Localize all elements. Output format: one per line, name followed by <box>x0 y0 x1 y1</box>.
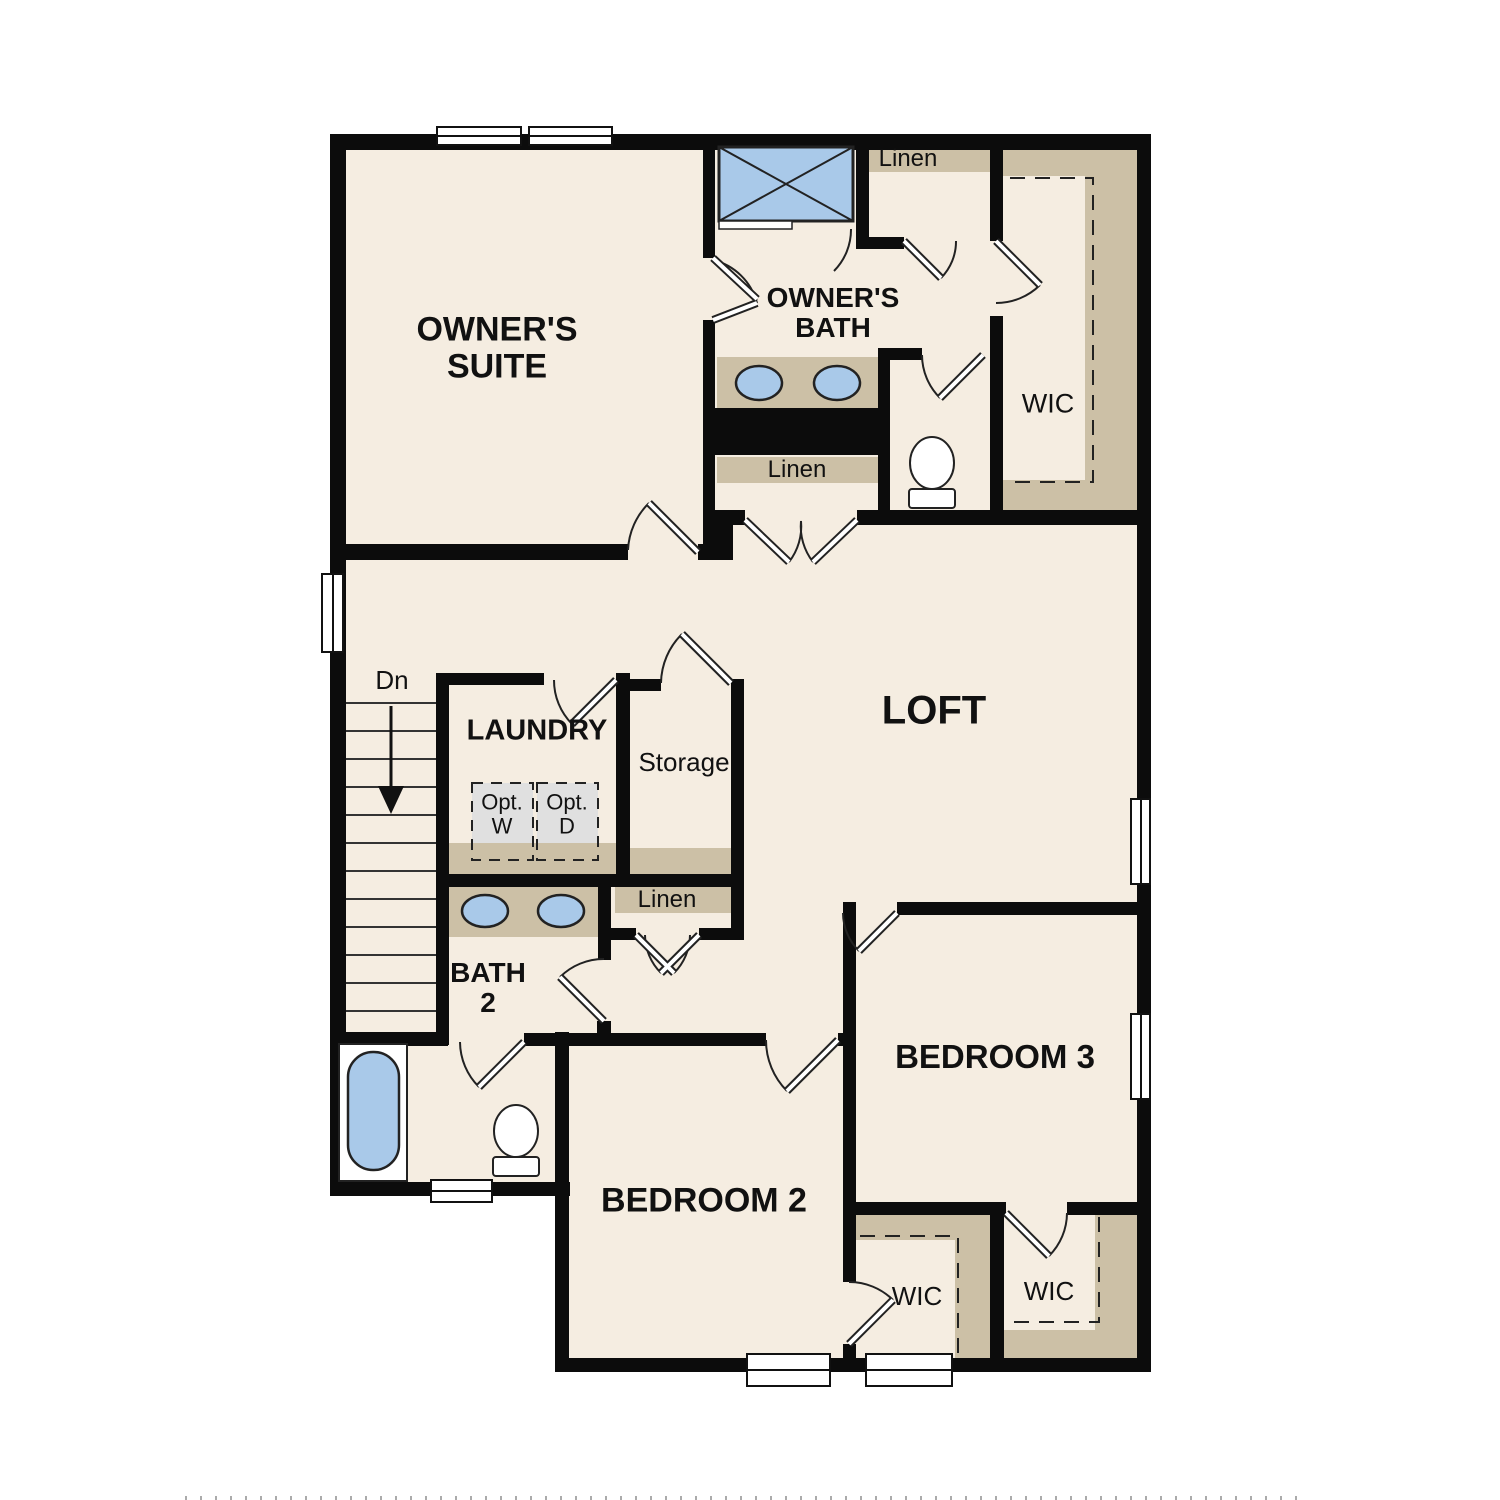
label-linen-hall: Linen <box>638 887 697 913</box>
toilet-bath2-icon <box>493 1105 539 1176</box>
bathtub-icon <box>339 1044 407 1181</box>
label-line: 2 <box>450 988 526 1018</box>
label-bedroom2: BEDROOM 2 <box>601 1183 807 1220</box>
label-wic-bedroom3: WIC <box>1024 1277 1075 1305</box>
label-stairs-dn: Dn <box>375 666 408 694</box>
label-linen-upper: Linen <box>879 146 938 172</box>
label-storage: Storage <box>638 748 729 776</box>
label-opt-washer: Opt. W <box>481 790 523 838</box>
plan-linework <box>0 0 1500 1500</box>
double-sink-owners-icon <box>736 366 860 400</box>
label-line: OWNER'S <box>767 283 900 313</box>
label-line: D <box>546 814 588 838</box>
double-sink-bath2-icon <box>462 895 584 927</box>
label-bath2: BATH 2 <box>450 958 526 1018</box>
label-bedroom3: BEDROOM 3 <box>895 1039 1095 1075</box>
toilet-owners-icon <box>909 437 955 508</box>
label-line: SUITE <box>416 348 577 385</box>
label-line: Opt. <box>546 790 588 814</box>
label-opt-dryer: Opt. D <box>546 790 588 838</box>
label-owners-suite: OWNER'S SUITE <box>416 311 577 384</box>
label-wic-bedroom2: WIC <box>892 1282 943 1310</box>
label-line: BATH <box>767 313 900 343</box>
label-line: BATH <box>450 958 526 988</box>
label-line: W <box>481 814 523 838</box>
floor-plan-canvas: OWNER'S SUITE OWNER'S BATH WIC Linen Lin… <box>0 0 1500 1500</box>
label-laundry: LAUNDRY <box>467 715 608 746</box>
label-wic-owners: WIC <box>1022 389 1074 418</box>
shower-icon <box>719 147 853 271</box>
label-line: Opt. <box>481 790 523 814</box>
label-loft: LOFT <box>882 689 986 732</box>
label-line: OWNER'S <box>416 311 577 348</box>
clipped-disclaimer-text <box>185 1496 1310 1500</box>
label-owners-bath: OWNER'S BATH <box>767 283 900 343</box>
label-linen-bath: Linen <box>768 457 827 483</box>
